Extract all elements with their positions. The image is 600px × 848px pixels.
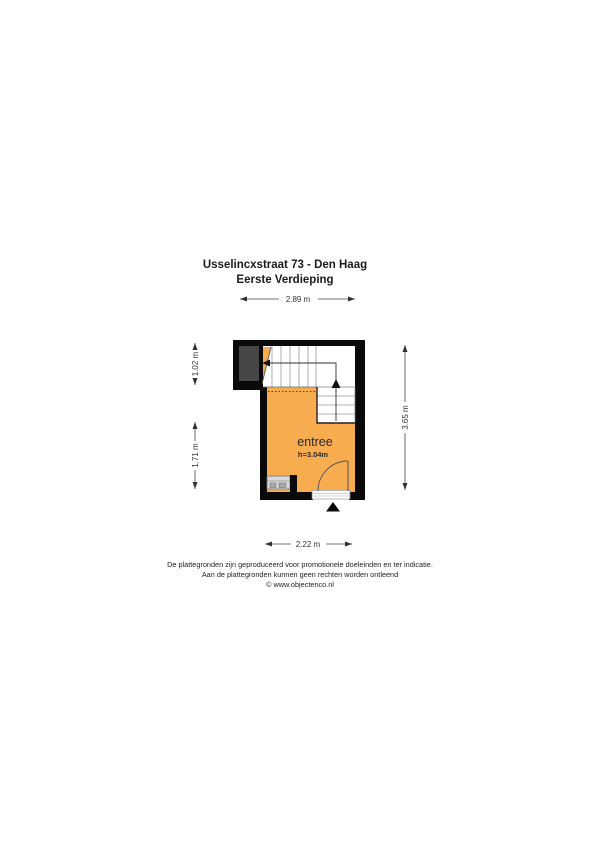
footer-line-2: Aan de plattegronden kunnen geen rechten…: [202, 570, 398, 579]
dimension-bottom: 2.22 m: [265, 540, 352, 549]
footer-line-1: De plattegronden zijn geproduceerd voor …: [167, 560, 433, 569]
page-title: Usselincxstraat 73 - Den Haag: [203, 259, 367, 271]
dimension-left-lower-label: 1.71 m: [191, 443, 200, 468]
staircase-upper: [272, 346, 316, 387]
page-subtitle: Eerste Verdieping: [236, 274, 333, 286]
fixture-cabinet: [267, 476, 290, 489]
wall-stub: [290, 475, 297, 500]
dimension-right: 3.65 m: [401, 345, 410, 490]
dimension-left-upper: 1.02 m: [191, 343, 200, 385]
entrance-marker-icon: [326, 502, 340, 512]
dimension-top-label: 2.89 m: [286, 295, 311, 304]
dimension-right-label: 3.65 m: [401, 405, 410, 430]
room-height-label: h=3.04m: [298, 450, 329, 459]
floor-plan: entree h=3.04m: [233, 340, 365, 512]
floorplan-canvas: Usselincxstraat 73 - Den Haag Eerste Ver…: [0, 0, 600, 848]
footer-disclaimer: De plattegronden zijn geproduceerd voor …: [167, 560, 433, 589]
arrow-up-icon: [332, 379, 341, 388]
dimension-bottom-label: 2.22 m: [296, 540, 321, 549]
footer-copyright: © www.objectenco.nl: [266, 580, 334, 589]
door-threshold: [312, 491, 350, 500]
dimension-top: 2.89 m: [240, 295, 355, 304]
void-area: [239, 346, 259, 381]
room-name-label: entree: [297, 435, 332, 449]
floorplan-page: Usselincxstraat 73 - Den Haag Eerste Ver…: [0, 0, 600, 848]
dimension-left-lower: 1.71 m: [191, 422, 200, 489]
dimension-left-upper-label: 1.02 m: [191, 351, 200, 376]
